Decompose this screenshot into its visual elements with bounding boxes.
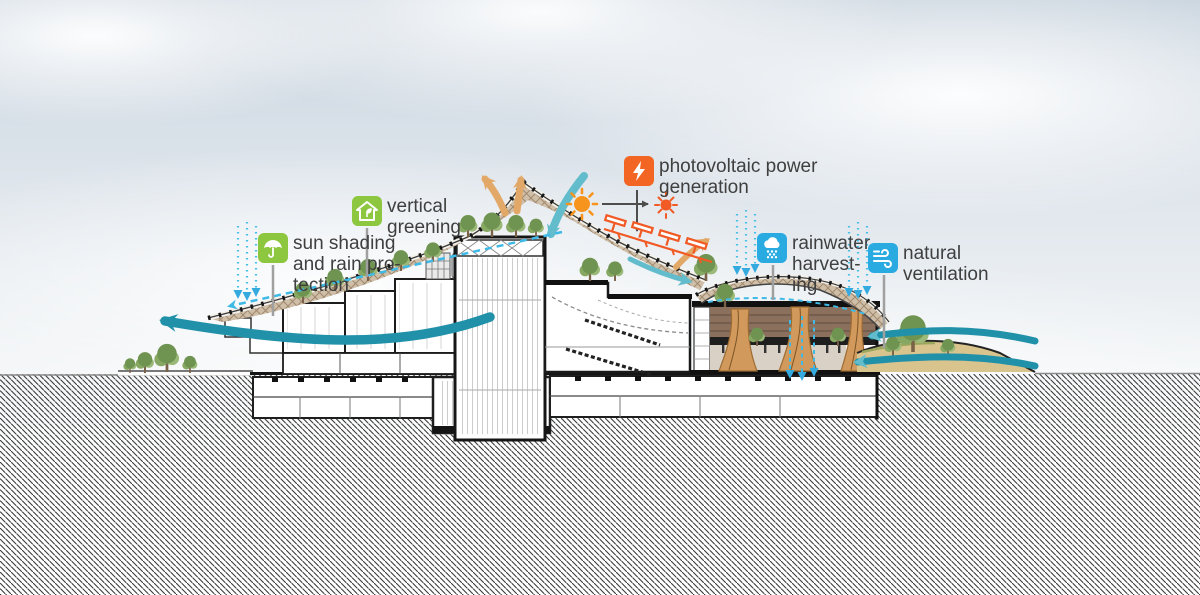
umbrella-icon: [258, 233, 288, 263]
left-ground-platform: [118, 344, 253, 376]
label-sun-shading: sun shading and rain pro- tection: [258, 233, 401, 296]
mid-block: [545, 280, 692, 375]
label-text: natural ventilation: [903, 243, 989, 285]
label-text: vertical greening: [387, 196, 461, 238]
label-text: rainwater harvest- ing: [792, 233, 870, 296]
section-drawing: [0, 0, 1200, 595]
label-text: sun shading and rain pro- tection: [293, 233, 401, 296]
rain-dotted-group-mid: [737, 210, 755, 274]
lightning-icon: [624, 156, 654, 186]
label-rainwater: rainwater harvest- ing: [757, 233, 870, 296]
fly-tower: [455, 237, 545, 440]
rain-cloud-icon: [757, 233, 787, 263]
sun-icon: [567, 189, 597, 219]
label-ventilation: natural ventilation: [868, 243, 989, 285]
label-text: photovoltaic power generation: [659, 156, 817, 198]
solar-panel-icons: [603, 215, 712, 263]
rain-dotted-group-left: [238, 222, 256, 298]
house-plant-icon: [352, 196, 382, 226]
right-block: [690, 301, 880, 373]
wind-icon: [868, 243, 898, 273]
diagram-scene: sun shading and rain pro- tection vertic…: [0, 0, 1200, 595]
label-vertical-greening: vertical greening: [352, 196, 461, 238]
label-photovoltaic: photovoltaic power generation: [624, 156, 817, 198]
